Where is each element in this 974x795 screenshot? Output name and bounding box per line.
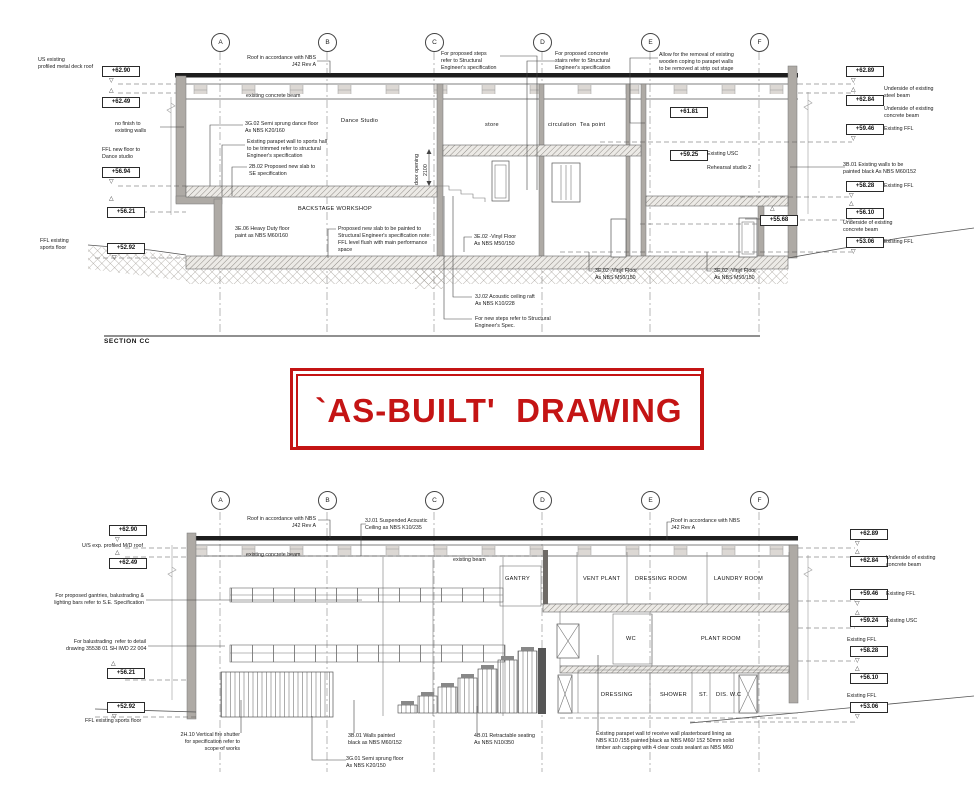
section-bottom-geometry	[95, 512, 974, 772]
drawing-page: US existing profiled metal deck roof+62.…	[0, 0, 974, 795]
section-cc-geometry	[88, 52, 974, 336]
as-built-stamp-text: `AS-BUILT' DRAWING	[315, 392, 682, 430]
as-built-stamp: `AS-BUILT' DRAWING	[290, 368, 704, 450]
as-built-stamp-frame: `AS-BUILT' DRAWING	[296, 374, 702, 448]
